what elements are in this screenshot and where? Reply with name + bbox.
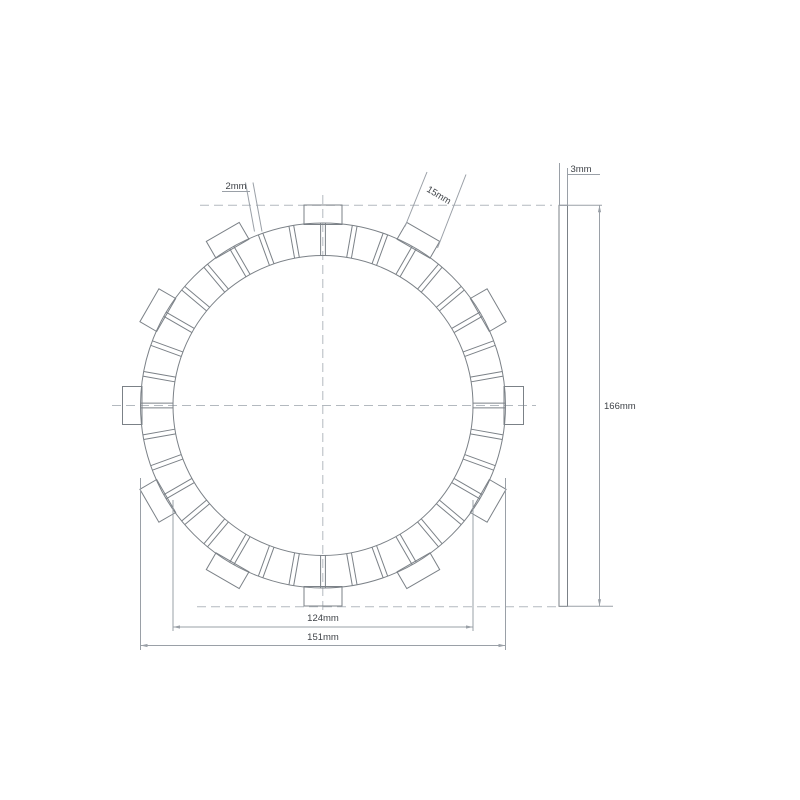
slot-1-right-edge — [351, 226, 357, 258]
friction-ring-diameter-label: 151mm — [307, 632, 339, 643]
slot-1-left-edge — [347, 225, 353, 257]
slot-25-left-edge — [152, 459, 183, 470]
slot-26-left-edge — [144, 434, 176, 440]
slot-2-right-edge — [377, 235, 388, 266]
slot-7-left-edge — [463, 341, 494, 352]
slot-35-left-edge — [289, 226, 295, 258]
slot-20-right-edge — [258, 546, 269, 577]
slot-32-left-edge — [204, 267, 225, 292]
tab-1 — [397, 222, 440, 258]
dimension-lines — [141, 163, 614, 650]
slot-17-right-edge — [347, 554, 353, 586]
arrow-166-top — [598, 205, 601, 212]
arrow-124-right — [466, 625, 473, 628]
slot-5-right-edge — [439, 290, 464, 311]
tab-4 — [470, 480, 506, 523]
slot-28-right-edge — [144, 371, 176, 377]
arrow-151-left — [141, 644, 148, 647]
slot-11-left-edge — [465, 455, 496, 466]
slot-14-left-edge — [421, 519, 442, 544]
centerlines — [112, 195, 558, 616]
leader-15mm-left — [405, 172, 427, 227]
slot-16-left-edge — [377, 546, 388, 577]
slot-5-left-edge — [436, 286, 461, 307]
leader-15mm-right — [438, 175, 467, 249]
slot-29-left-edge — [151, 345, 182, 356]
slot-8-right-edge — [471, 376, 503, 382]
side-view — [559, 205, 568, 606]
slot-7-right-edge — [465, 345, 496, 356]
overall-diameter-label: 166mm — [604, 401, 636, 412]
arrow-166-bottom — [598, 599, 601, 606]
slot-4-right-edge — [421, 267, 442, 292]
slot-22-left-edge — [208, 522, 229, 547]
tab-5 — [397, 553, 440, 589]
slot-10-left-edge — [471, 429, 503, 435]
tab-8 — [140, 480, 176, 523]
side-view-plate — [559, 205, 568, 606]
slot-13-left-edge — [439, 500, 464, 521]
slot-4-left-edge — [418, 264, 439, 289]
technical-drawing: 2mm 15mm 3mm 166mm 124mm 151mm — [0, 0, 800, 800]
slot-25-right-edge — [151, 455, 182, 466]
slot-23-right-edge — [182, 500, 207, 521]
slot-31-right-edge — [185, 286, 210, 307]
arrow-151-right — [499, 644, 506, 647]
slot-10-right-edge — [470, 434, 502, 440]
slot-8-left-edge — [470, 371, 502, 377]
slot-22-right-edge — [204, 519, 225, 544]
tab-7 — [206, 553, 249, 589]
thickness-label: 3mm — [570, 164, 591, 175]
slot-29-right-edge — [152, 341, 183, 352]
slot-width-label: 2mm — [225, 181, 246, 192]
slot-20-left-edge — [263, 547, 274, 578]
tab-10 — [140, 289, 176, 332]
slot-19-right-edge — [289, 553, 295, 585]
tab-width-label: 15mm — [424, 184, 452, 207]
slot-19-left-edge — [294, 554, 300, 586]
slot-34-right-edge — [263, 233, 274, 264]
tab-2 — [470, 289, 506, 332]
leader-2mm-right — [253, 183, 262, 232]
arrow-124-left — [173, 625, 180, 628]
slot-2-left-edge — [372, 233, 383, 264]
slot-16-right-edge — [372, 547, 383, 578]
slot-23-left-edge — [185, 504, 210, 525]
leader-2mm-left — [246, 183, 255, 232]
slot-11-right-edge — [463, 459, 494, 470]
drawing-page: 2mm 15mm 3mm 166mm 124mm 151mm — [0, 0, 800, 800]
slot-17-left-edge — [351, 553, 357, 585]
slot-34-left-edge — [258, 235, 269, 266]
slot-14-right-edge — [418, 522, 439, 547]
slot-26-right-edge — [143, 429, 175, 435]
tab-11 — [206, 222, 249, 258]
slot-31-left-edge — [182, 290, 207, 311]
slot-28-left-edge — [143, 376, 175, 382]
inner-diameter-label: 124mm — [307, 613, 339, 624]
slot-13-right-edge — [436, 504, 461, 525]
slot-35-right-edge — [294, 225, 300, 257]
slot-32-right-edge — [208, 264, 229, 289]
